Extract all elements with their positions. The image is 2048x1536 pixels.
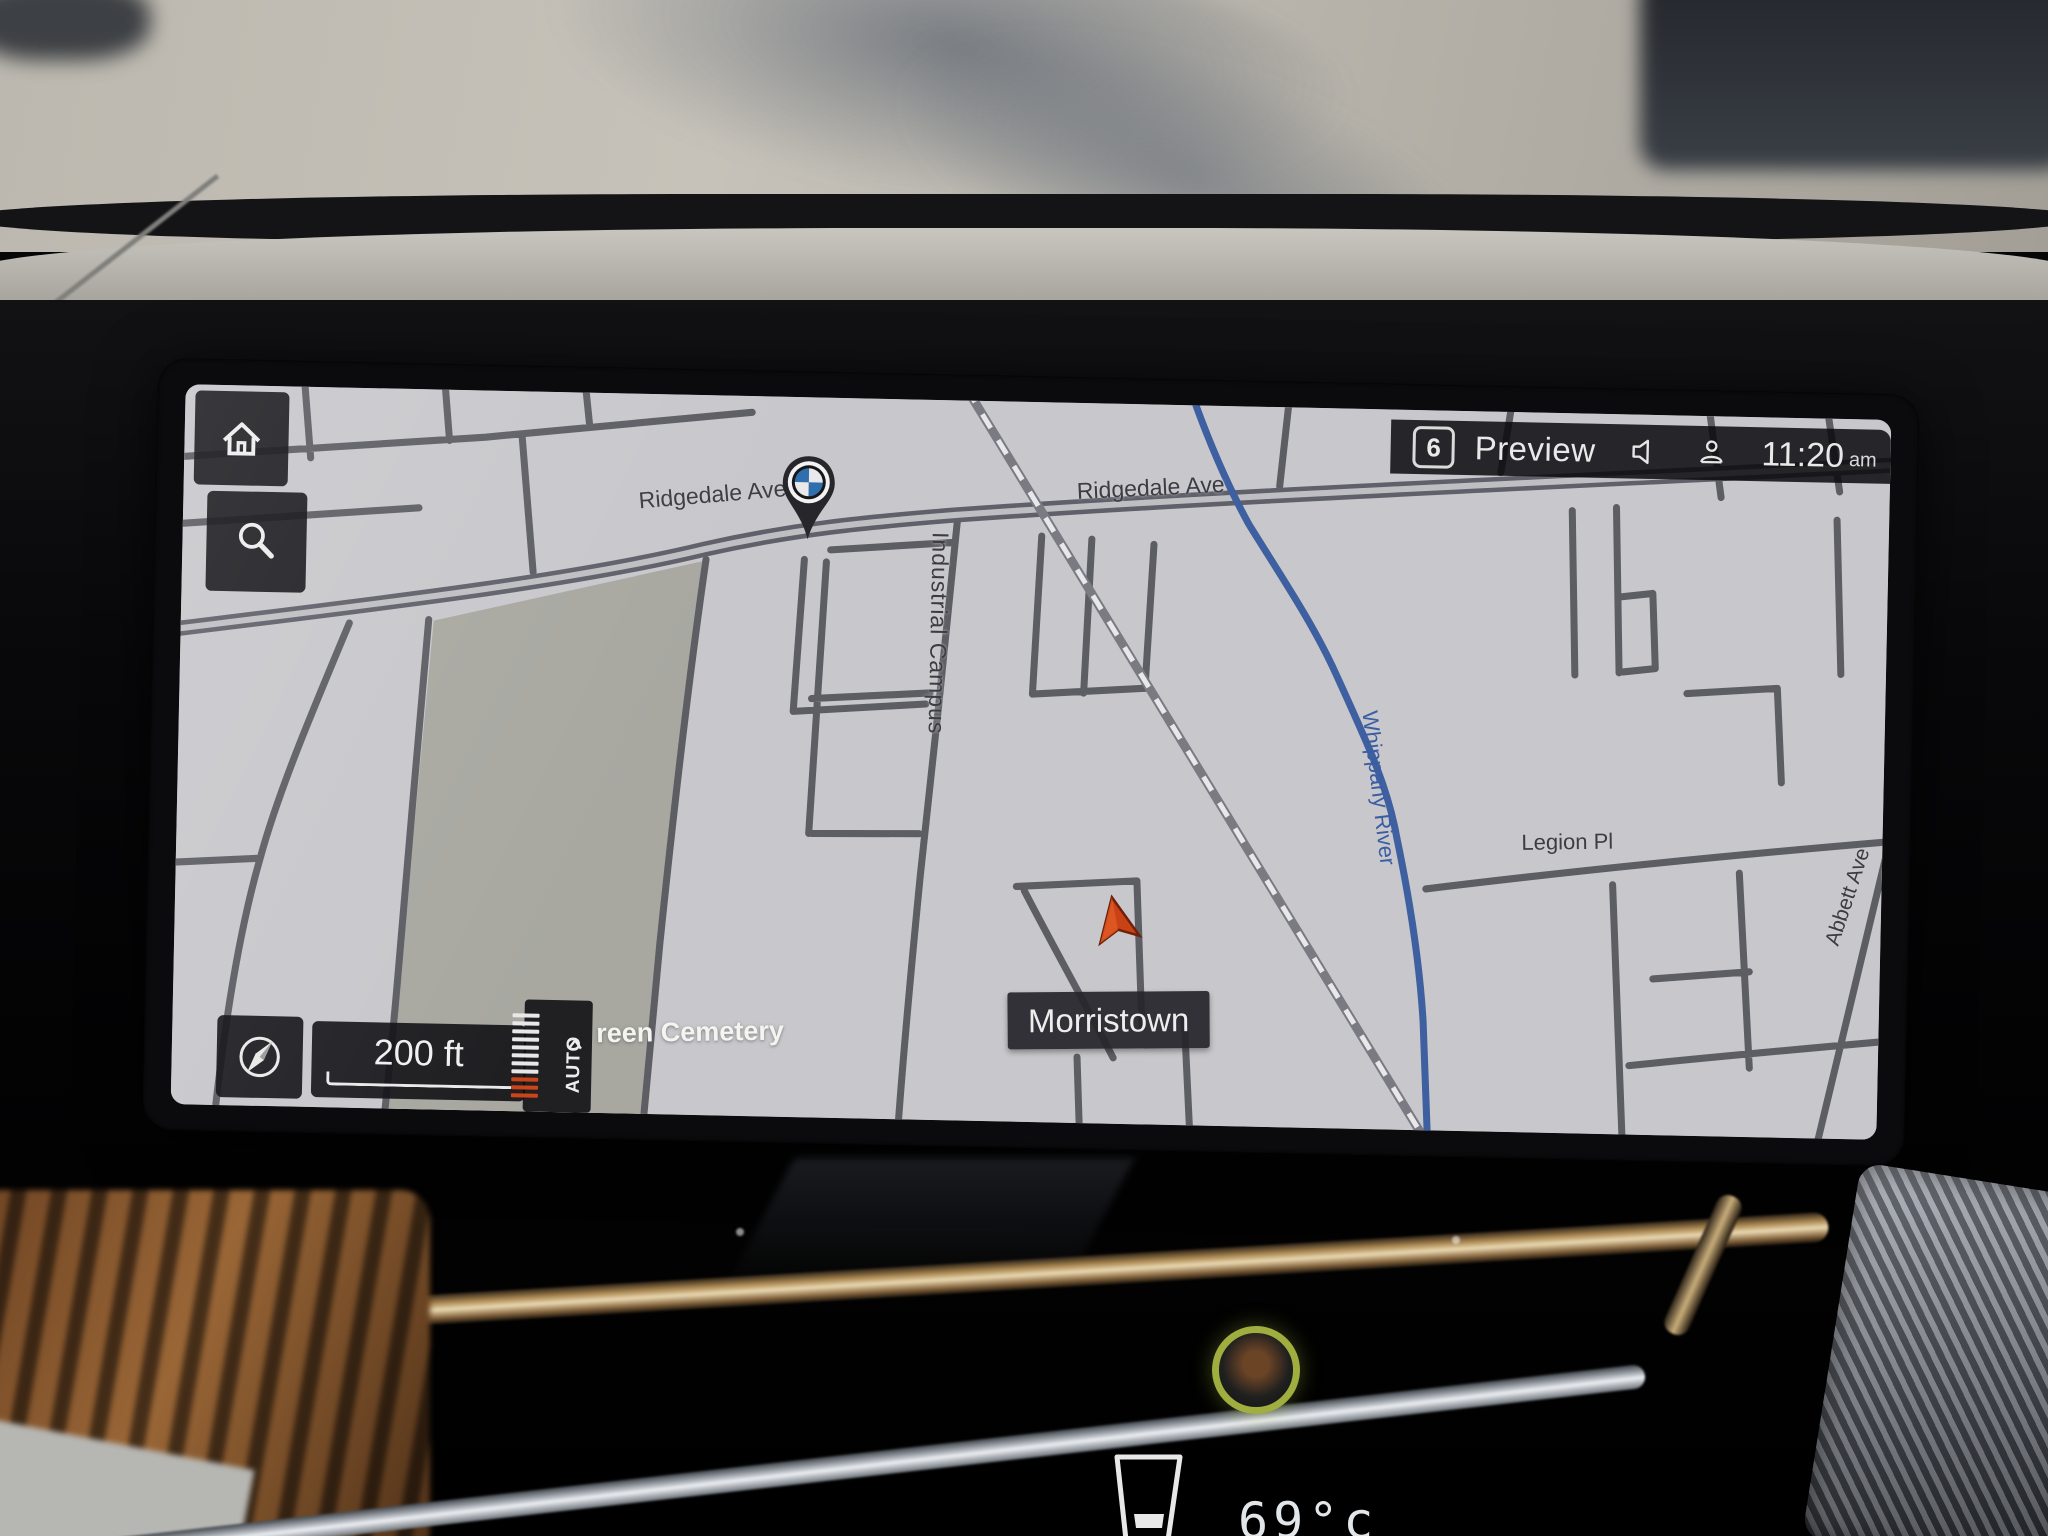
idrive-display-bezel: Ridgedale Ave Ridgedale Ave Industrial C… bbox=[142, 358, 1920, 1167]
media-source-label: Preview bbox=[1474, 429, 1596, 470]
map-scale-control[interactable]: 200 ft bbox=[311, 1021, 527, 1101]
speaker-muted-icon bbox=[1629, 435, 1662, 468]
home-icon bbox=[215, 412, 268, 465]
navigation-map[interactable]: Ridgedale Ave Ridgedale Ave Industrial C… bbox=[171, 384, 1892, 1140]
auto-zoom-control[interactable]: AUTO bbox=[523, 999, 593, 1112]
car-cockpit-photo: Ridgedale Ave Ridgedale Ave Industrial C… bbox=[0, 0, 2048, 1536]
vehicle-arrow-icon bbox=[1088, 890, 1146, 955]
auto-zoom-label: AUTO bbox=[563, 1035, 586, 1093]
driver-profile-icon bbox=[1695, 437, 1728, 470]
search-button[interactable] bbox=[205, 491, 307, 593]
compass-button[interactable] bbox=[216, 1015, 304, 1099]
street-label-industrial-campus: Industrial Campus bbox=[923, 532, 954, 735]
parked-car bbox=[1640, 0, 2048, 170]
city-label-text: Morristown bbox=[1028, 1001, 1190, 1040]
scale-label: 200 ft bbox=[373, 1034, 464, 1072]
street-label-legion-pl: Legion Pl bbox=[1521, 829, 1613, 856]
status-bar: 6 Preview 11:20 am bbox=[1390, 419, 1891, 483]
search-icon bbox=[228, 513, 285, 570]
media-track-badge: 6 bbox=[1412, 426, 1455, 469]
climate-temp-display: 69°c bbox=[1238, 1492, 1378, 1536]
clock-meridiem: am bbox=[1849, 441, 1877, 473]
hazard-console-icon bbox=[1092, 1452, 1202, 1536]
bmw-pin-icon bbox=[776, 453, 840, 551]
city-label: Morristown bbox=[1007, 991, 1209, 1049]
start-stop-button[interactable] bbox=[1212, 1326, 1300, 1414]
scale-bar bbox=[326, 1071, 511, 1089]
highlight-dot bbox=[1452, 1236, 1460, 1244]
clock: 11:20 bbox=[1761, 435, 1844, 476]
zoom-level-bars bbox=[511, 1013, 540, 1098]
background-blob bbox=[0, 0, 150, 60]
highlight-dot bbox=[736, 1228, 744, 1236]
home-button[interactable] bbox=[194, 390, 290, 486]
compass-icon bbox=[231, 1028, 288, 1085]
cemetery-label: reen Cemetery bbox=[596, 1016, 784, 1050]
